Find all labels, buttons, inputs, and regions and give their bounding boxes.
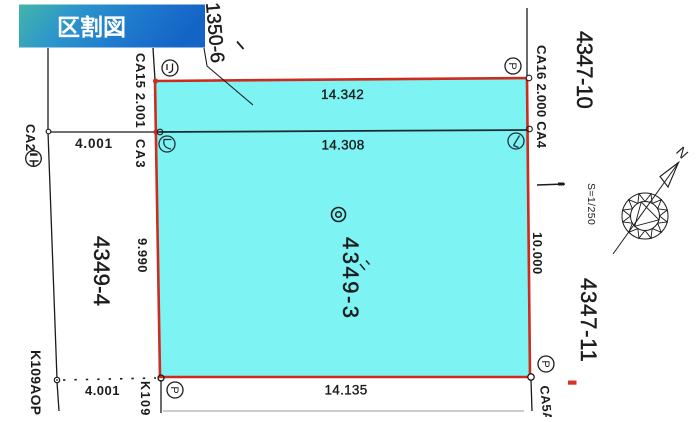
svg-text:P: P (168, 386, 180, 393)
svg-text:CA3: CA3 (133, 139, 148, 169)
svg-text:K109: K109 (138, 381, 152, 417)
svg-text:CA15 2.001: CA15 2.001 (133, 53, 148, 128)
svg-text:4.001: 4.001 (75, 136, 113, 151)
svg-text:P: P (539, 360, 551, 367)
svg-text:4347-10: 4347-10 (572, 31, 597, 109)
svg-text:CA2: CA2 (23, 124, 38, 152)
svg-text:4349-3: 4349-3 (338, 237, 363, 321)
svg-text:4349-4: 4349-4 (89, 236, 114, 306)
svg-text:S=1/250: S=1/250 (585, 183, 597, 225)
svg-text:4347-11: 4347-11 (576, 278, 601, 363)
svg-text:10.000: 10.000 (530, 232, 545, 275)
svg-text:K109AOP: K109AOP (28, 350, 44, 415)
svg-text:9.990: 9.990 (135, 238, 150, 273)
svg-text:14.342: 14.342 (321, 87, 364, 102)
svg-text:14.135: 14.135 (324, 383, 367, 398)
svg-text:区割図: 区割図 (57, 14, 126, 40)
svg-text:CA16 2.000 CA4: CA16 2.000 CA4 (534, 45, 549, 149)
svg-text:4.001: 4.001 (85, 383, 120, 398)
svg-text:14.308: 14.308 (321, 138, 364, 153)
svg-text:P: P (506, 62, 518, 69)
